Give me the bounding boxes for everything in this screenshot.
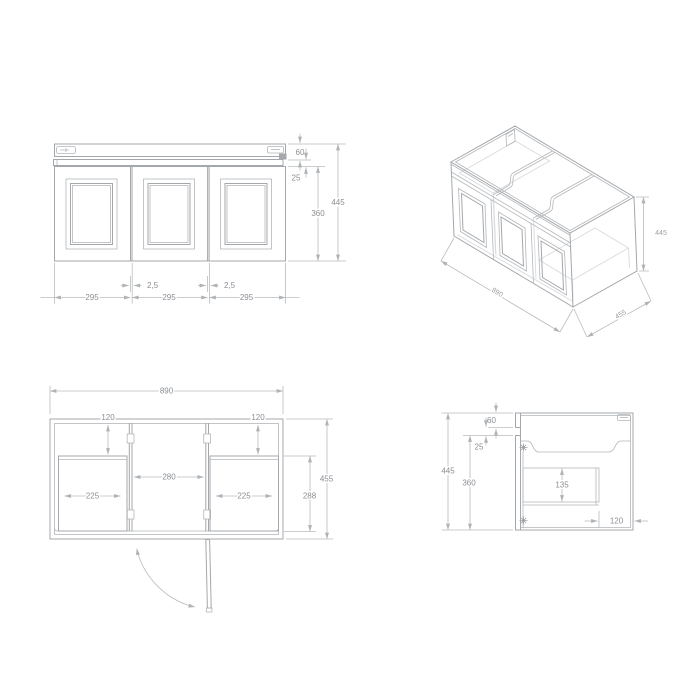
iso-door-3 [538, 236, 567, 295]
dim-plan-opening-right: 225 [237, 492, 251, 501]
dim-side-counter-height: 60 [487, 416, 496, 425]
iso-top-rim-inner [456, 129, 630, 231]
front-door-gaps [131, 167, 210, 262]
iso-door-1 [459, 189, 487, 248]
wall-bracket-icon [506, 130, 515, 147]
dim-plan-depth: 455 [320, 475, 334, 484]
dim-front-door-width-2: 295 [162, 293, 176, 302]
side-carcass-inner [521, 416, 631, 528]
technical-drawing-page: 60 25 360 445 2,5 2,5 295 295 295 [0, 0, 700, 700]
front-door-2 [144, 179, 195, 249]
front-door-3 [221, 179, 272, 249]
side-fascia [516, 413, 521, 428]
dim-plan-width: 890 [160, 387, 174, 396]
dim-front-door-gap-right: 2,5 [224, 281, 236, 290]
plan-view: 890 120 120 280 225 225 455 288 [50, 386, 334, 612]
dim-front-total-height: 445 [331, 198, 345, 207]
vanity-cabinet-drawing: 60 25 360 445 2,5 2,5 295 295 295 [0, 0, 700, 700]
front-dimensions-bottom: 2,5 2,5 295 295 295 [41, 263, 300, 304]
wall-bracket-icon [268, 147, 284, 154]
door-swing-arc [137, 549, 195, 608]
isometric-view: 890 455 445 [441, 126, 667, 337]
plan-dimensions: 890 120 120 280 225 225 455 288 [50, 386, 334, 539]
dim-front-door-width-1: 295 [85, 293, 99, 302]
front-door-1 [66, 179, 117, 249]
dim-iso-depth: 455 [614, 309, 628, 321]
front-sub-rail [54, 160, 284, 166]
dim-front-door-gap-left: 2,5 [147, 281, 159, 290]
plan-open-door [206, 540, 212, 613]
iso-door-2 [499, 212, 527, 271]
dim-plan-offset-right: 120 [251, 413, 265, 422]
iso-divider-2 [534, 175, 595, 220]
dim-side-back-offset: 120 [610, 517, 624, 526]
dim-side-gap-height: 25 [475, 443, 484, 452]
side-section-view: 60 25 445 360 135 120 [441, 403, 648, 531]
dim-front-door-height: 360 [311, 209, 325, 218]
iso-divider-1 [494, 151, 555, 196]
dim-plan-inner-depth: 288 [303, 492, 317, 501]
dim-plan-opening-left: 225 [86, 492, 100, 501]
dim-front-gap-height: 25 [292, 174, 301, 183]
dim-plan-opening-center: 280 [162, 473, 176, 482]
dim-side-shelf-depth: 135 [555, 481, 569, 490]
iso-dimensions: 890 455 445 [441, 197, 667, 337]
side-dimensions: 60 25 445 360 135 120 [441, 403, 648, 531]
dim-front-counter-height: 60 [296, 148, 305, 157]
front-counter-top [55, 144, 286, 157]
front-elevation-view: 60 25 360 445 2,5 2,5 295 295 295 [41, 134, 347, 304]
plan-front-rail [55, 528, 279, 532]
dim-plan-offset-left: 120 [101, 413, 115, 422]
side-basin-profile [521, 441, 631, 452]
iso-top-rim-outer [451, 126, 634, 233]
side-carcass [521, 413, 634, 530]
side-door [516, 436, 521, 531]
wall-bracket-icon [57, 147, 76, 154]
dim-front-door-width-3: 295 [240, 293, 254, 302]
dim-iso-height: 445 [655, 230, 667, 237]
dim-side-door-height: 360 [462, 479, 476, 488]
front-carcass [55, 167, 286, 262]
dim-side-total-height: 445 [441, 467, 455, 476]
fixing-plate-icon [279, 154, 287, 160]
front-dimensions-right: 60 25 360 445 [288, 134, 346, 262]
